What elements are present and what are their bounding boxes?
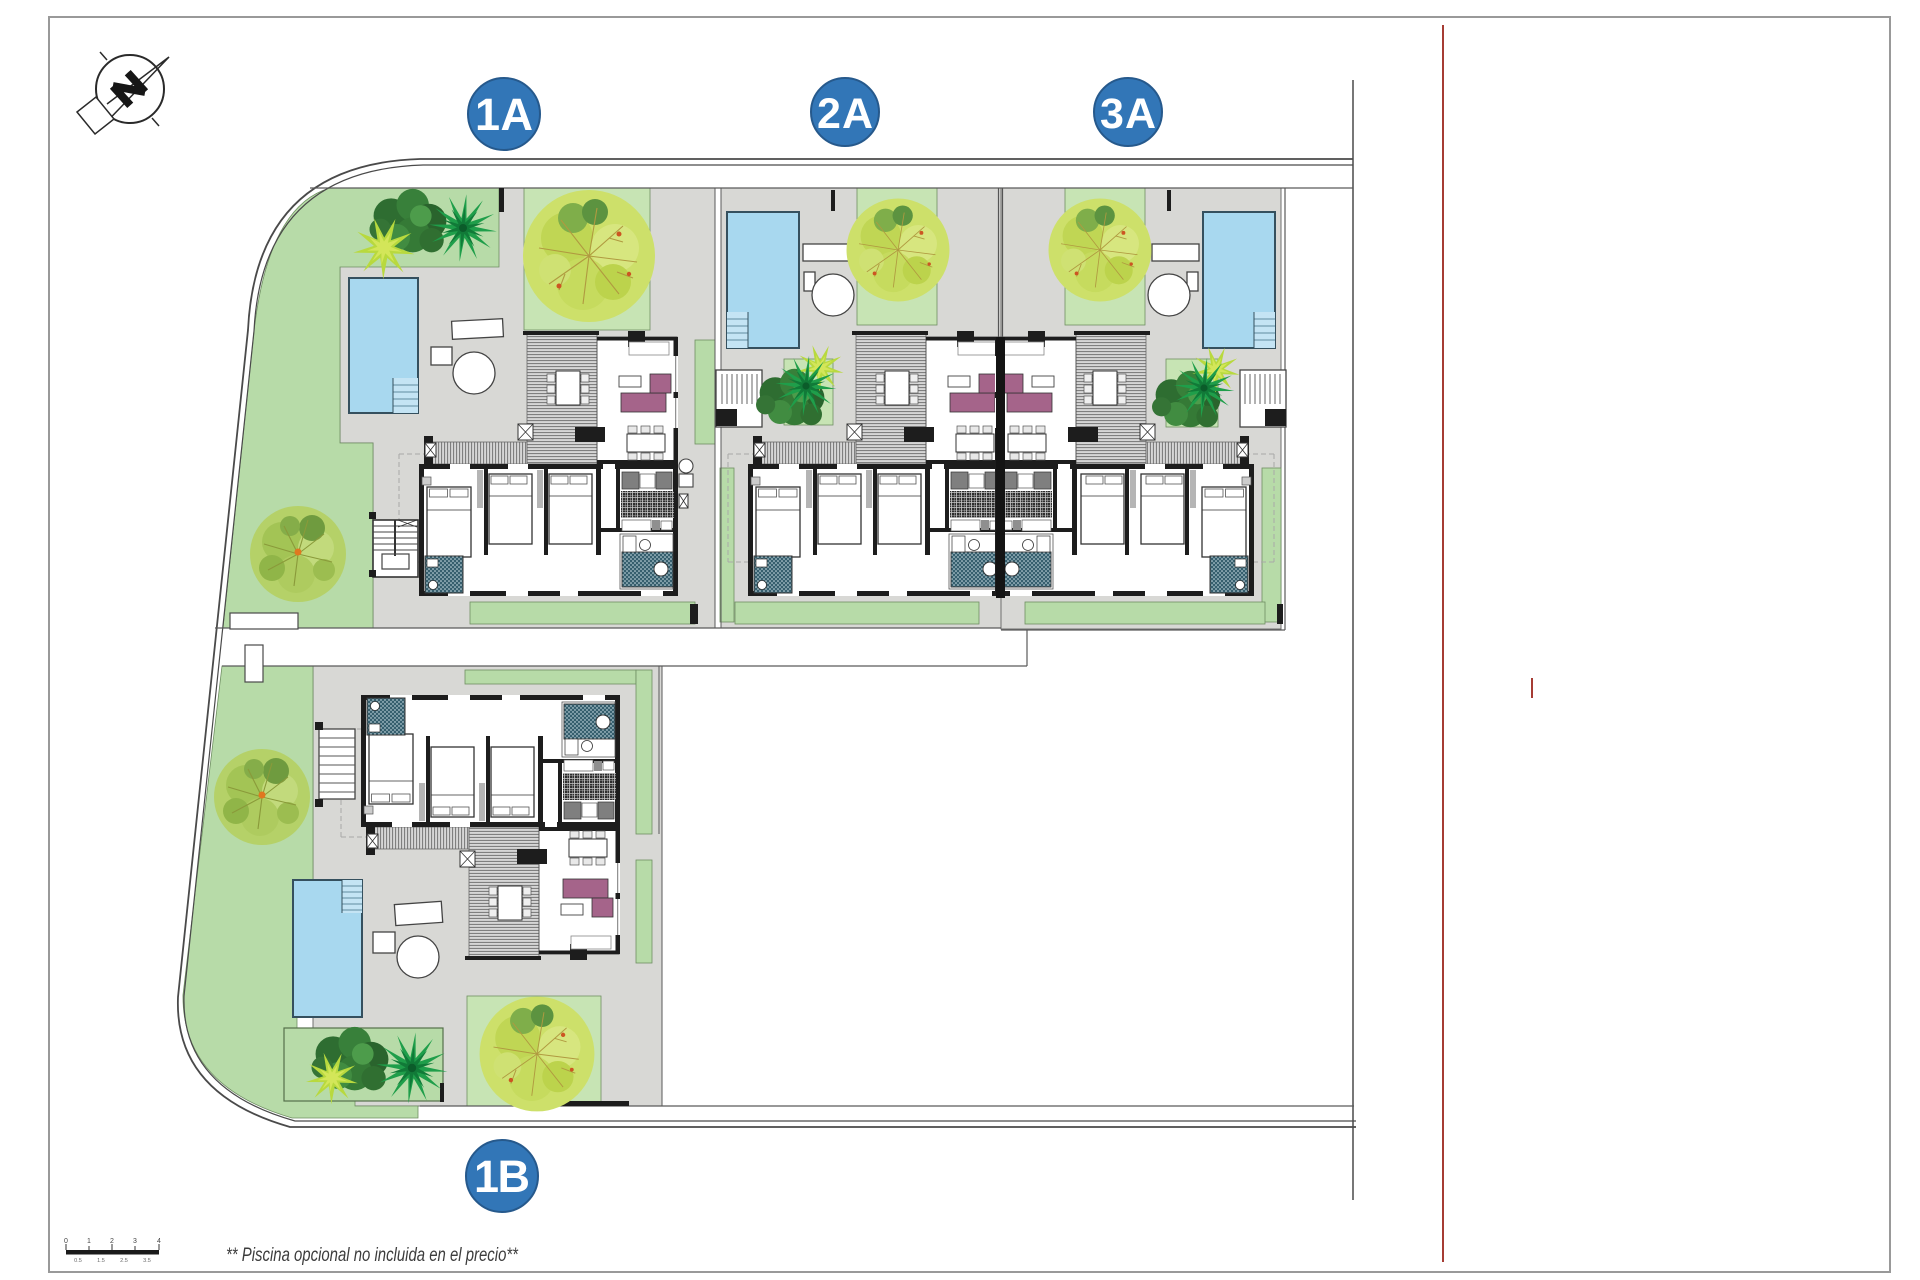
svg-text:** Piscina opcional no incluid: ** Piscina opcional no incluida en el pr…: [226, 1245, 518, 1266]
svg-text:2A: 2A: [817, 90, 873, 138]
svg-text:1.5: 1.5: [97, 1258, 105, 1264]
svg-text:3A: 3A: [1100, 90, 1156, 138]
svg-text:2: 2: [110, 1238, 114, 1245]
svg-text:1A: 1A: [475, 89, 533, 140]
svg-text:4: 4: [157, 1238, 161, 1245]
svg-text:0: 0: [64, 1238, 68, 1245]
svg-text:3.5: 3.5: [143, 1258, 151, 1264]
svg-text:1B: 1B: [474, 1151, 530, 1202]
svg-text:3: 3: [133, 1238, 137, 1245]
svg-text:2.5: 2.5: [120, 1258, 128, 1264]
svg-text:0.5: 0.5: [74, 1258, 82, 1264]
svg-text:1: 1: [87, 1238, 91, 1245]
